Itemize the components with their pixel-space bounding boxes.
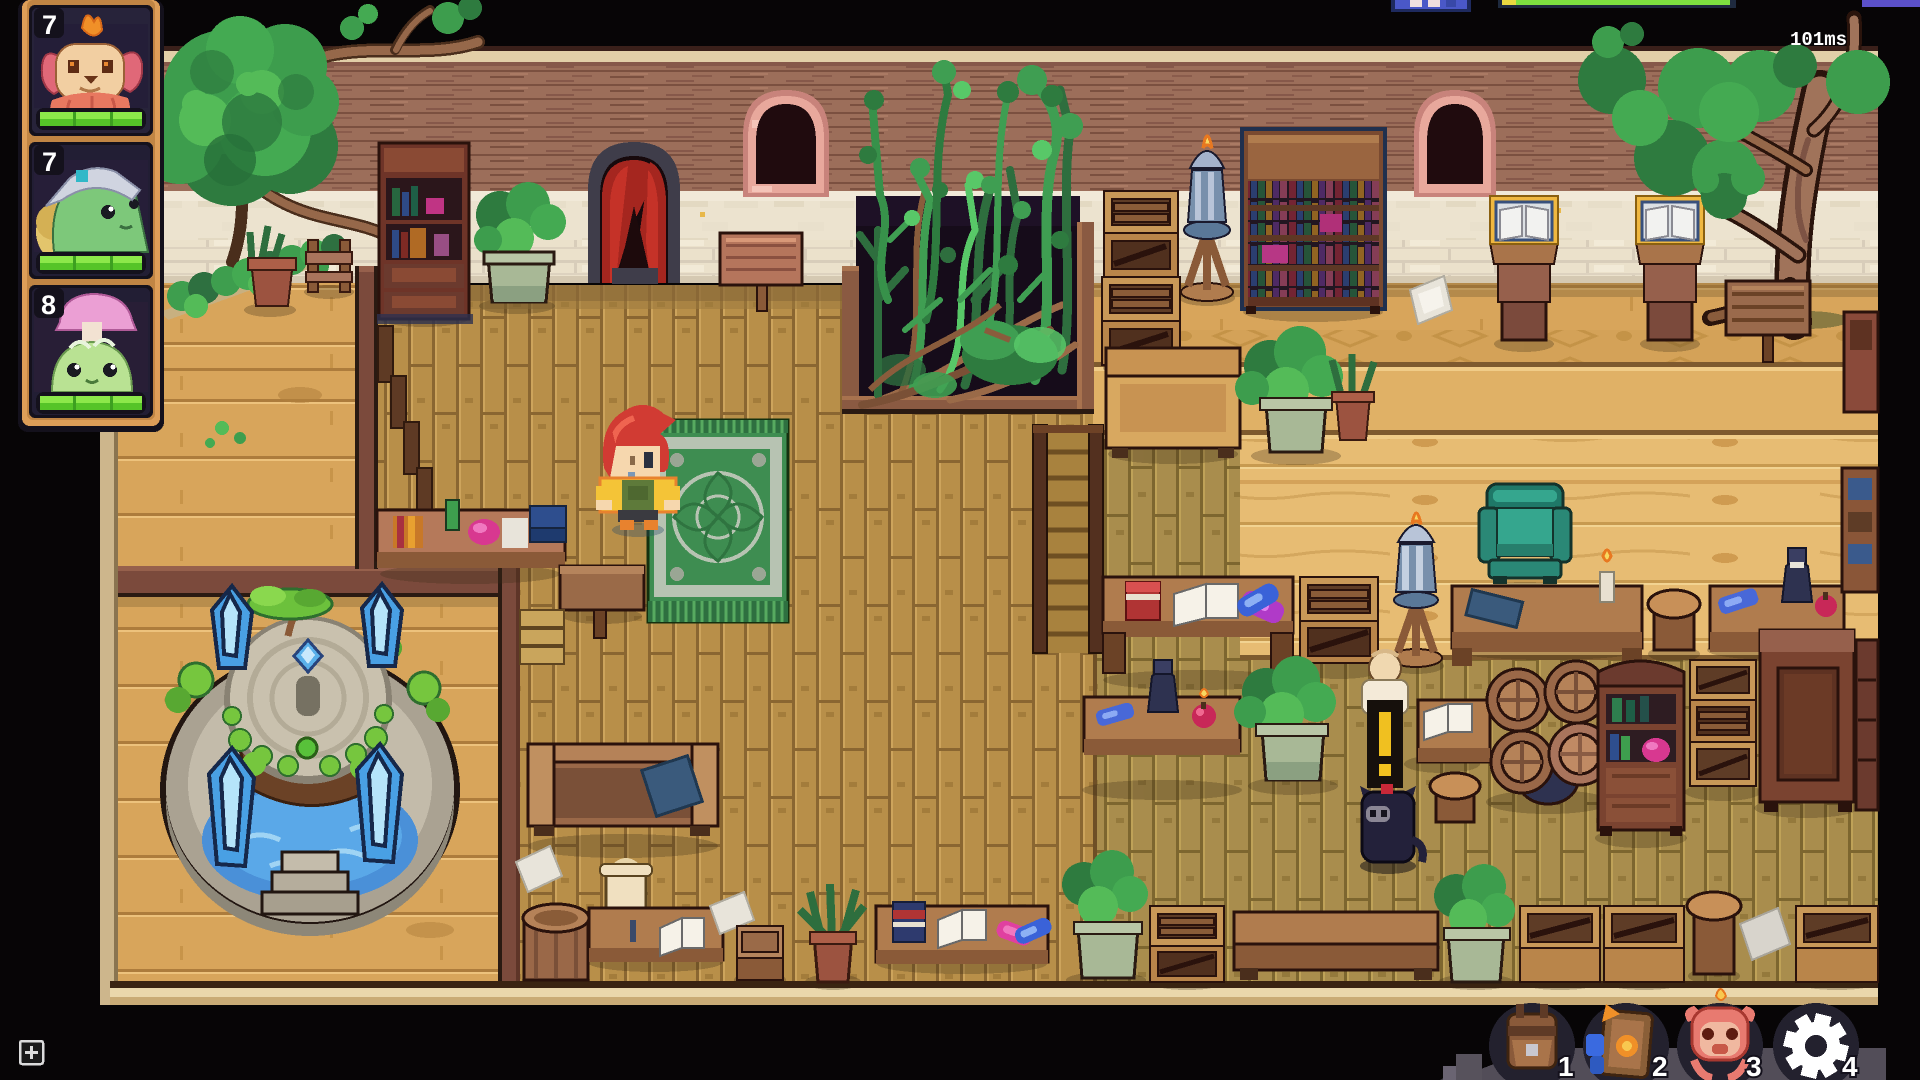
svg-text:4: 4 [1842, 1051, 1858, 1080]
svg-text:2: 2 [1652, 1051, 1668, 1080]
svg-text:8: 8 [41, 290, 56, 320]
svg-text:7: 7 [42, 147, 57, 177]
svg-text:1: 1 [1558, 1051, 1574, 1080]
svg-text:3: 3 [1746, 1051, 1762, 1080]
svg-text:7: 7 [42, 10, 57, 40]
svg-text:101ms: 101ms [1790, 29, 1847, 51]
